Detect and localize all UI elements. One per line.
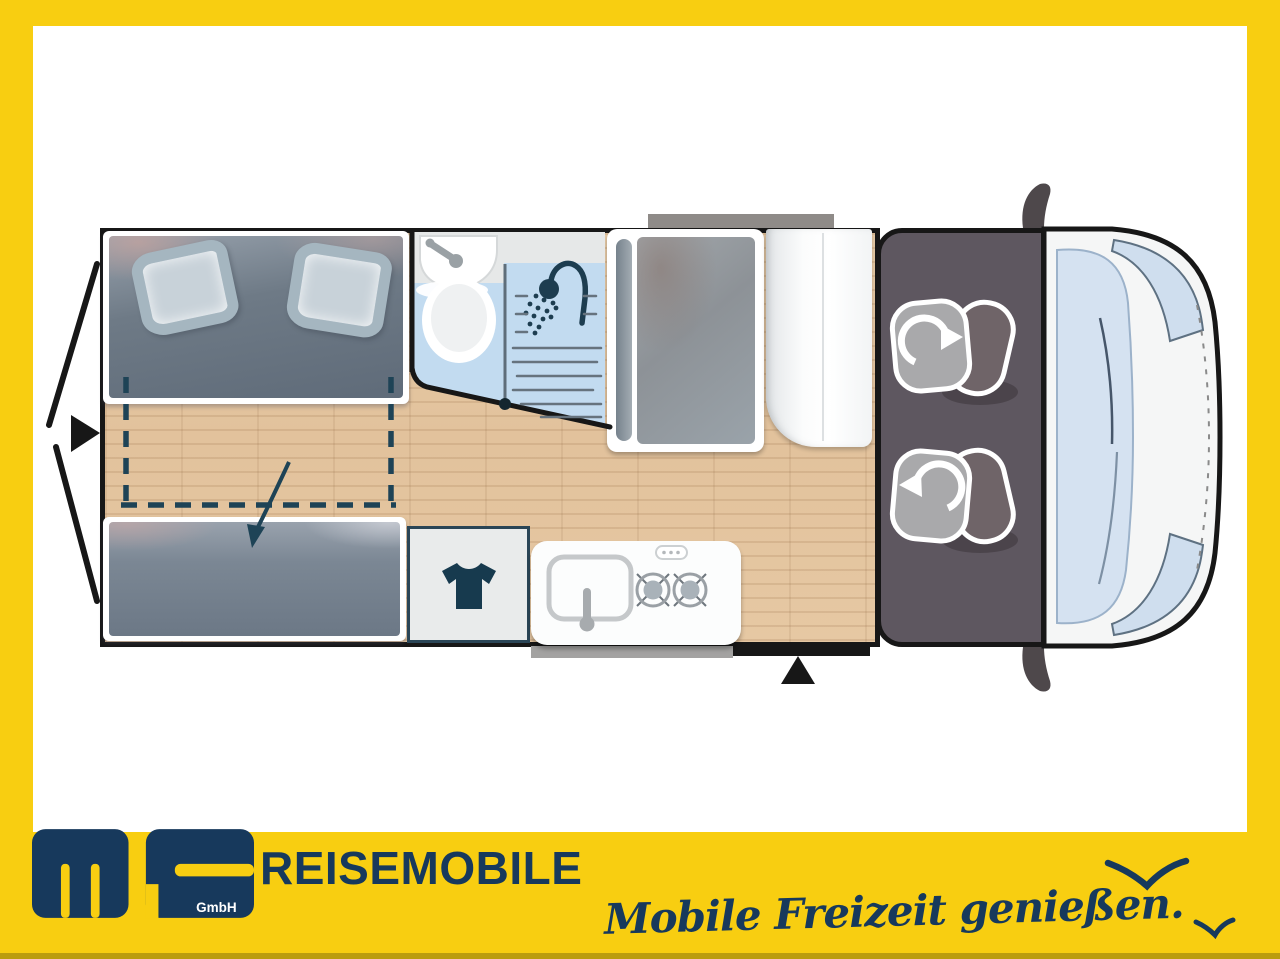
rear-doors-open-lines — [49, 264, 97, 601]
side-mirror-top — [1022, 183, 1050, 228]
ms-logo: GmbH — [32, 828, 254, 920]
wiper-line — [1100, 318, 1112, 444]
tall-cabinet — [766, 229, 872, 447]
page: GmbH REISEMOBILE Mobile Freizeit genieße… — [0, 0, 1280, 959]
door-window-bottom — [1112, 534, 1203, 635]
logo-suffix: GmbH — [196, 900, 237, 915]
entry-door-sill — [733, 643, 870, 656]
fridge-door-panel — [637, 237, 755, 444]
fridge-handle — [616, 239, 632, 441]
door-window-top — [1112, 240, 1203, 341]
photo-canvas — [33, 26, 1247, 832]
pillow-right — [284, 240, 394, 340]
bottom-edge-shadow — [0, 953, 1280, 959]
hood-dashed-line — [1197, 305, 1209, 570]
floorplan — [0, 0, 1280, 959]
wiper-line — [1099, 452, 1117, 584]
company-name: REISEMOBILE — [260, 845, 582, 891]
entry-door-arrow-icon — [781, 656, 815, 684]
brand-bar: GmbH REISEMOBILE Mobile Freizeit genieße… — [0, 832, 1280, 959]
bench-bed-mattress — [109, 522, 400, 636]
side-mirror-bottom — [1022, 647, 1050, 692]
wardrobe-box — [407, 526, 530, 643]
windshield — [1057, 249, 1133, 623]
van-front — [1044, 229, 1220, 646]
roof-vent-block — [648, 214, 834, 229]
tall-cabinet-door-line — [822, 233, 824, 441]
birds-icon — [1090, 850, 1250, 950]
cab-floor — [876, 228, 1046, 647]
brand-tagline: Mobile Freizeit genießen. — [603, 880, 1164, 944]
entry-step — [531, 646, 733, 658]
rear-entry-arrow-icon — [71, 415, 100, 452]
kitchen-block — [531, 541, 741, 645]
